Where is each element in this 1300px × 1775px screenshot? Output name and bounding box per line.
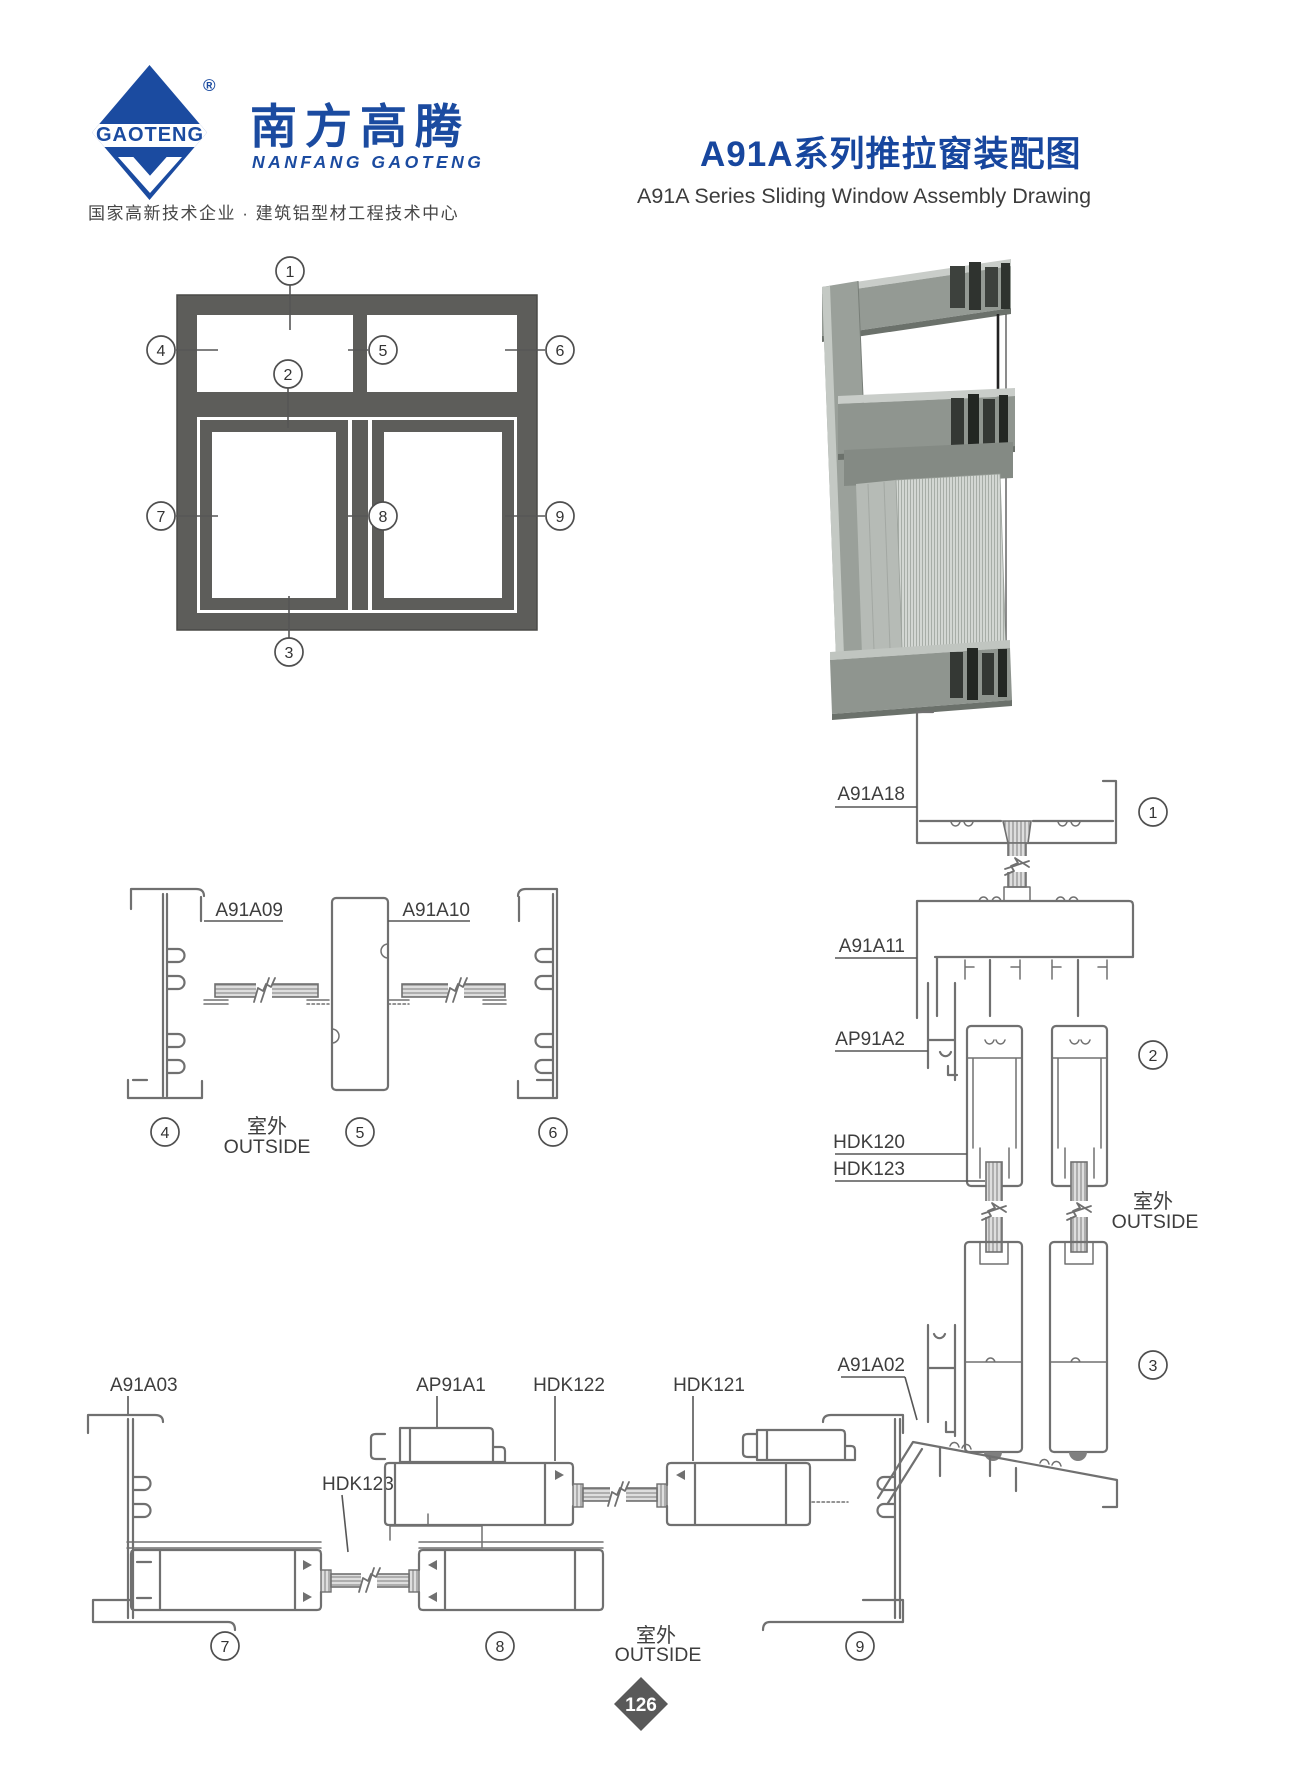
glass-3d [856, 480, 902, 655]
profile-ap91a1 [371, 1428, 505, 1462]
svg-text:HDK121: HDK121 [673, 1375, 745, 1396]
head-cut-face [950, 262, 1010, 310]
page-title-en: A91A Series Sliding Window Assembly Draw… [637, 184, 1091, 209]
svg-text:7: 7 [221, 1639, 230, 1656]
callout-9-number: 9 [556, 509, 565, 526]
label-hdk123: HDK123 [833, 1159, 985, 1181]
callout-2: 2 [274, 360, 302, 388]
label-ap91a1: AP91A1 [416, 1375, 486, 1427]
label-a91a02: A91A02 [837, 1355, 917, 1420]
section-horizontal-bottom: A91A03 HDK123 AP91A1 [88, 1375, 903, 1666]
svg-text:3: 3 [1149, 1358, 1158, 1375]
catalog-page: 1 2 3 4 5 6 7 8 9 [0, 0, 1300, 1775]
callout-4: 4 [147, 336, 175, 364]
svg-text:A91A18: A91A18 [837, 784, 905, 805]
company-name-en: NANFANG GAOTENG [252, 152, 484, 173]
svg-text:6: 6 [549, 1125, 558, 1142]
profile-a91a11 [917, 901, 1133, 1018]
page-number-diamond: 126 [614, 1677, 668, 1731]
callout-5-number: 5 [379, 343, 388, 360]
section-vertical-right: A91A18 1 A91A11 AP91A2 2 HDK12 [833, 712, 1198, 1507]
profile-a91a10 [332, 898, 388, 1090]
profile-ap91a2 [928, 983, 957, 1080]
page-title-cn: A91A系列推拉窗装配图 [700, 126, 1081, 177]
svg-text:A91A03: A91A03 [110, 1375, 178, 1396]
sash-bottom-rails [965, 1242, 1107, 1461]
svg-text:1: 1 [1149, 805, 1158, 822]
elevation-drawing: 1 2 3 4 5 6 7 8 9 [147, 257, 574, 666]
outside-cn-right: 室外 [1133, 1189, 1173, 1213]
callout-3: 3 [275, 638, 303, 666]
callout-7: 7 [147, 502, 175, 530]
profile-right-jamb [518, 889, 557, 1098]
label-hdk122: HDK122 [533, 1375, 605, 1461]
callout-2-section: 2 [1139, 1041, 1167, 1069]
svg-text:5: 5 [356, 1125, 365, 1142]
company-tagline: 国家高新技术企业 · 建筑铝型材工程技术中心 [88, 199, 459, 224]
profile-a91a02 [928, 1325, 955, 1436]
label-hdk121: HDK121 [673, 1375, 745, 1461]
svg-text:8: 8 [496, 1639, 505, 1656]
label-a91a11: A91A11 [835, 936, 917, 958]
profile-a91a09 [128, 889, 204, 1098]
callout-6: 6 [546, 336, 574, 364]
callout-9-section: 9 [846, 1632, 874, 1660]
outside-en-right: OUTSIDE [1112, 1211, 1199, 1233]
label-hdk120: HDK120 [833, 1132, 967, 1154]
svg-text:9: 9 [856, 1639, 865, 1656]
callout-1-number: 1 [286, 264, 295, 281]
page-number: 126 [625, 1695, 657, 1716]
render-3d [822, 259, 1015, 720]
sash-pane-left [212, 432, 336, 598]
callout-5: 5 [369, 336, 397, 364]
svg-text:A91A02: A91A02 [837, 1355, 905, 1376]
callout-4-section: 4 [151, 1118, 179, 1146]
callout-6-section: 6 [539, 1118, 567, 1146]
callout-3-number: 3 [285, 645, 294, 662]
callout-8-number: 8 [379, 509, 388, 526]
callout-3-section: 3 [1139, 1351, 1167, 1379]
svg-text:A91A10: A91A10 [402, 900, 470, 921]
mesh-3d [896, 474, 1006, 652]
callout-6-number: 6 [556, 343, 565, 360]
profile-right-jamb-bottom [763, 1415, 903, 1630]
callout-8-section: 8 [486, 1632, 514, 1660]
callout-1: 1 [276, 257, 304, 285]
svg-text:AP91A1: AP91A1 [416, 1375, 486, 1396]
label-ap91a2: AP91A2 [835, 1029, 928, 1051]
callout-2-number: 2 [284, 367, 293, 384]
registered-mark: ® [203, 76, 216, 96]
callout-8: 8 [369, 502, 397, 530]
svg-text:4: 4 [161, 1125, 170, 1142]
label-a91a03: A91A03 [110, 1375, 178, 1414]
callout-7-section: 7 [211, 1632, 239, 1660]
outside-en-left: OUTSIDE [224, 1136, 311, 1158]
svg-text:A91A11: A91A11 [839, 936, 905, 957]
svg-text:HDK123: HDK123 [322, 1474, 394, 1495]
callout-9: 9 [546, 502, 574, 530]
svg-text:A91A09: A91A09 [215, 900, 283, 921]
svg-text:HDK122: HDK122 [533, 1375, 605, 1396]
svg-text:HDK120: HDK120 [833, 1132, 905, 1153]
sash-7 [131, 1550, 321, 1610]
sash-8 [385, 1463, 573, 1525]
svg-text:2: 2 [1149, 1048, 1158, 1065]
svg-text:HDK123: HDK123 [833, 1159, 905, 1180]
sash-hdk121 [667, 1463, 810, 1525]
label-a91a10: A91A10 [388, 900, 470, 921]
profile-a91a03 [88, 1415, 235, 1630]
sash-lower-right [419, 1550, 603, 1610]
drawing-canvas: 1 2 3 4 5 6 7 8 9 [0, 0, 1300, 1775]
callout-1-section: 1 [1139, 798, 1167, 826]
label-hdk123-bottom: HDK123 [322, 1474, 394, 1552]
sash-pane-right [384, 432, 502, 598]
callout-7-number: 7 [157, 509, 166, 526]
callout-5-section: 5 [346, 1118, 374, 1146]
label-a91a09: A91A09 [204, 900, 283, 921]
section-horizontal-top: A91A09 A91A10 4 5 6 室外 OUTSIDE [128, 889, 567, 1158]
outside-en-bottom: OUTSIDE [615, 1644, 702, 1666]
company-name-cn: 南方高腾 [250, 88, 470, 157]
label-a91a18: A91A18 [835, 784, 917, 807]
callout-4-number: 4 [157, 343, 166, 360]
svg-text:AP91A2: AP91A2 [835, 1029, 905, 1050]
outside-cn-left: 室外 [247, 1114, 287, 1138]
logo-brand-text: GAOTENG [96, 124, 204, 147]
